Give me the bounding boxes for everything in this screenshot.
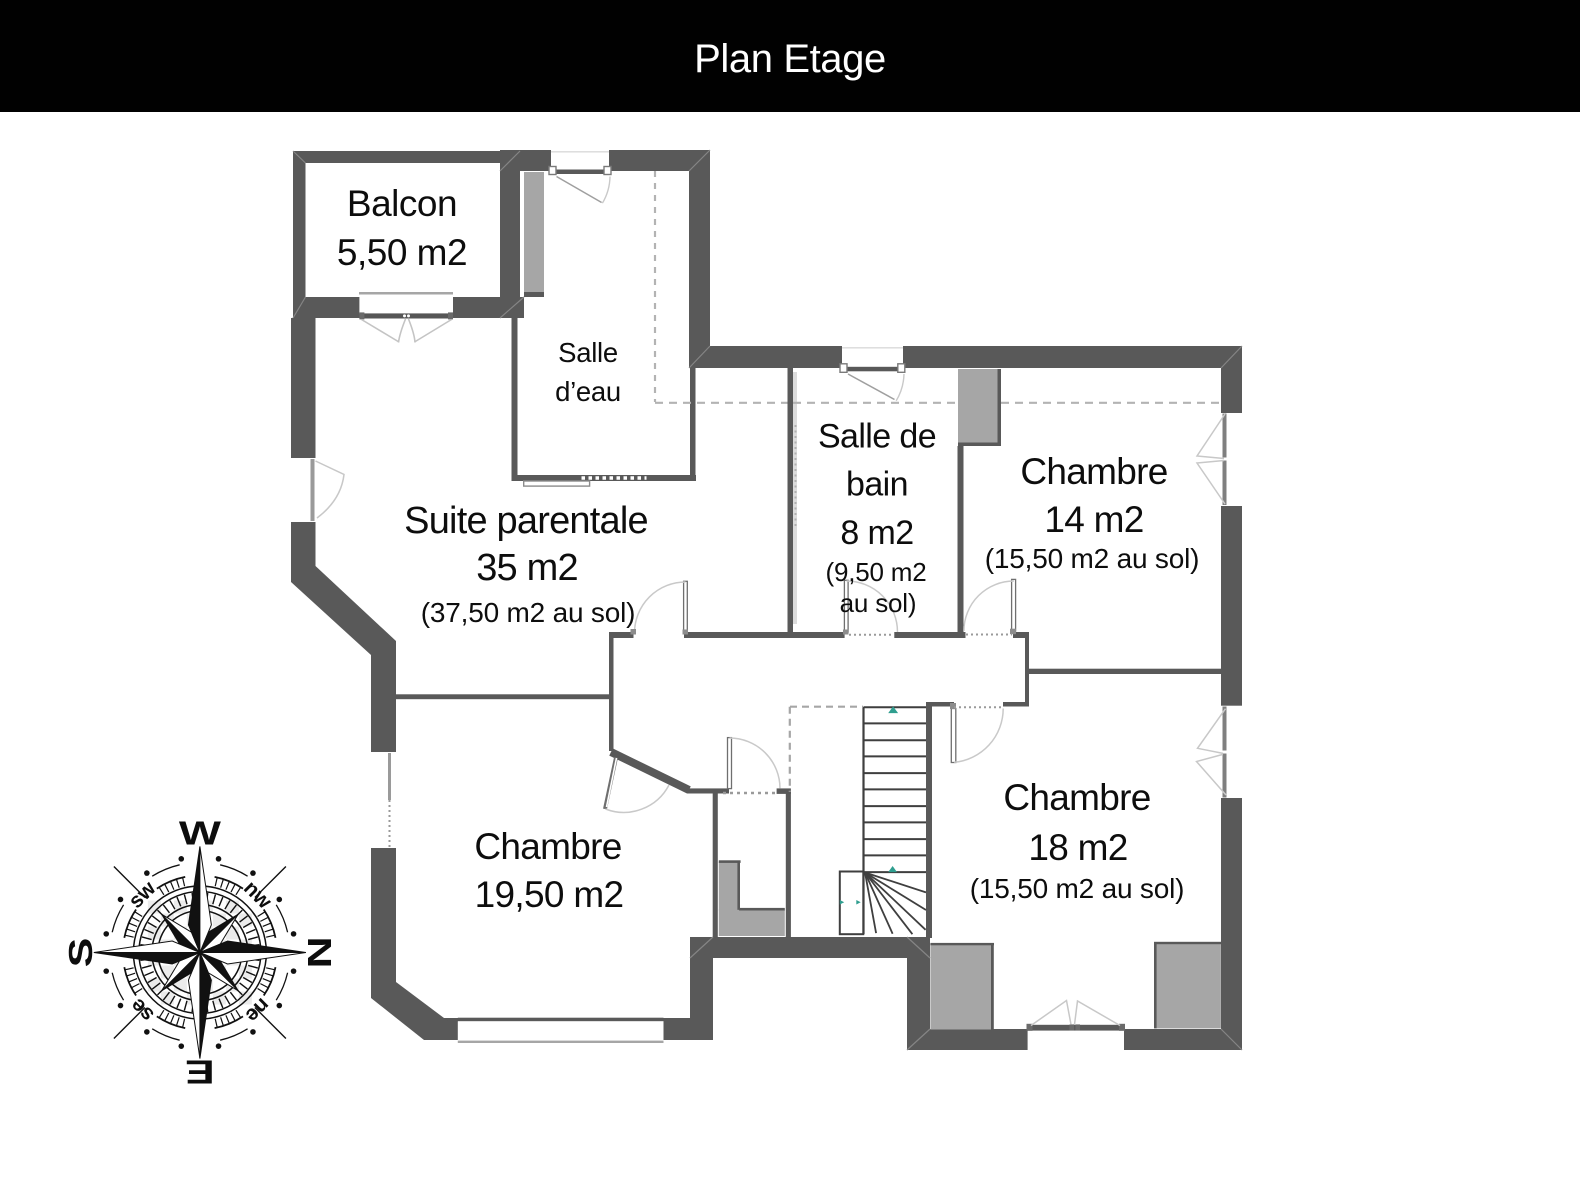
svg-text:18 m2: 18 m2 (1028, 827, 1127, 868)
svg-text:Balcon: Balcon (347, 183, 457, 224)
svg-text:W: W (179, 816, 221, 852)
svg-text:N: N (300, 936, 336, 968)
svg-text:E: E (185, 1053, 215, 1089)
svg-text:35 m2: 35 m2 (476, 547, 578, 589)
svg-text:bain: bain (846, 466, 908, 504)
svg-text:8 m2: 8 m2 (840, 514, 913, 552)
svg-text:14 m2: 14 m2 (1044, 499, 1143, 540)
svg-text:5,50 m2: 5,50 m2 (337, 232, 467, 273)
svg-text:Chambre: Chambre (474, 826, 621, 867)
svg-text:au sol): au sol) (840, 588, 917, 618)
svg-text:Salle de: Salle de (818, 418, 936, 456)
svg-text:Suite parentale: Suite parentale (404, 500, 648, 542)
svg-text:Plan Etage: Plan Etage (694, 37, 886, 81)
svg-text:19,50 m2: 19,50 m2 (475, 874, 624, 915)
svg-text:(37,50 m2 au sol): (37,50 m2 au sol) (421, 597, 636, 628)
svg-text:(15,50 m2 au sol): (15,50 m2 au sol) (970, 873, 1185, 904)
svg-text:Salle: Salle (558, 337, 618, 368)
svg-text:Chambre: Chambre (1003, 777, 1150, 818)
svg-text:Chambre: Chambre (1020, 451, 1167, 492)
svg-text:(9,50 m2: (9,50 m2 (825, 557, 926, 587)
svg-text:S: S (63, 938, 99, 968)
svg-text:d’eau: d’eau (555, 376, 621, 407)
svg-text:(15,50 m2 au sol): (15,50 m2 au sol) (985, 543, 1200, 574)
